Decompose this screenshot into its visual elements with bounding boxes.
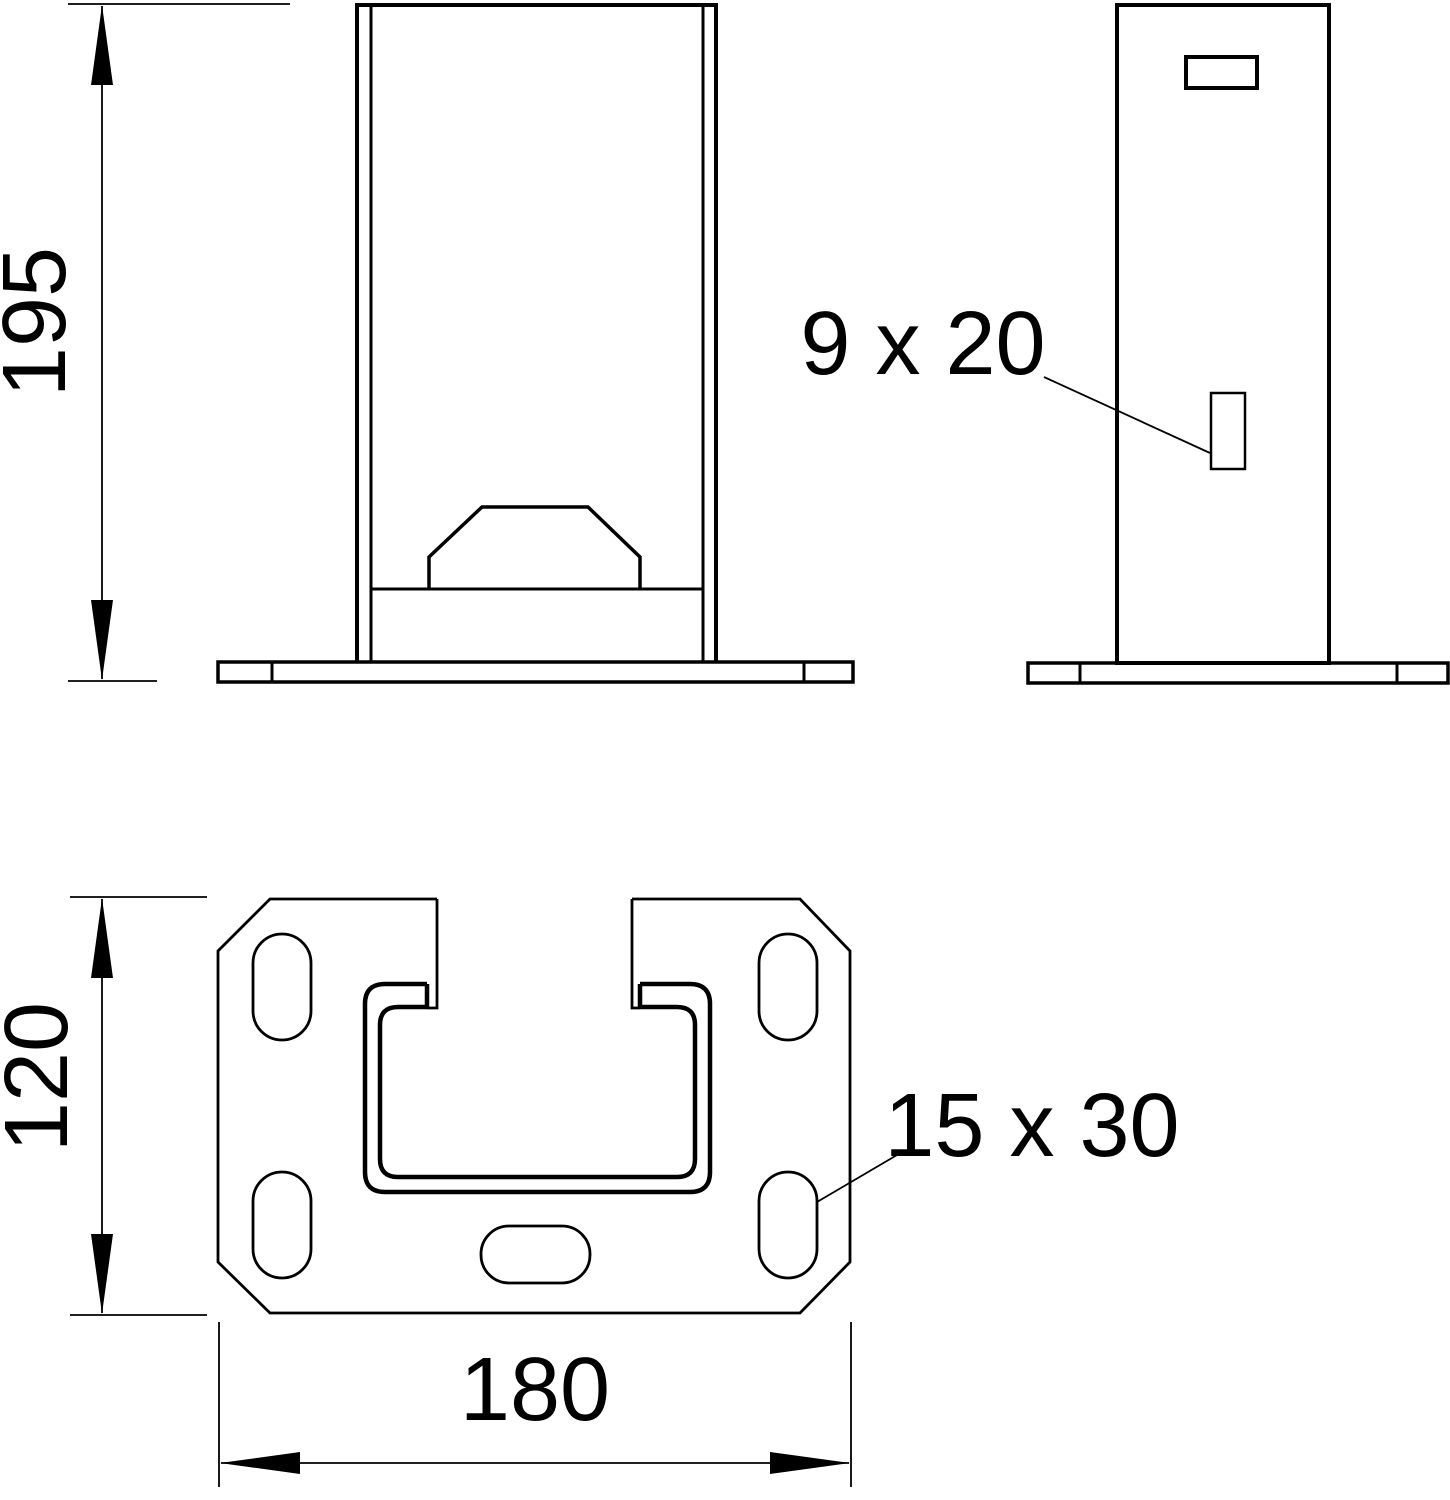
dim-120-value: 120: [0, 1002, 87, 1152]
slot-15x30-bottom-left: [253, 1172, 311, 1278]
dim-180-value: 180: [460, 1340, 610, 1440]
bottom-view: 15 x 30: [218, 899, 1180, 1313]
dim-120-arrow-down: [91, 1234, 113, 1314]
slot-15x30-top-left: [253, 934, 311, 1040]
front-base-plate: [218, 662, 853, 682]
side-base-plate: [1028, 663, 1448, 683]
dim-180-arrow-right: [770, 1452, 850, 1474]
dim-195-arrow-down: [91, 600, 113, 680]
dim-195-arrow-up: [91, 5, 113, 85]
channel-lip-tips: [427, 984, 640, 1007]
dim-195-value: 195: [0, 247, 85, 397]
side-top-slot: [1186, 57, 1257, 88]
dim-120-arrow-up: [91, 898, 113, 978]
side-oblong-slot-9x20: [1211, 393, 1245, 469]
slot-center-bottom: [481, 1226, 590, 1283]
front-hat-profile: [429, 507, 640, 589]
plate-octagon-outline: [218, 899, 850, 1313]
side-post-outline: [1117, 5, 1329, 663]
technical-drawing-page: 9 x 20 15 x 30 195: [0, 0, 1450, 1500]
slot-15x30-top-right: [759, 934, 817, 1040]
side-base-plate-corner-edges: [1080, 663, 1397, 683]
front-base-plate-corner-edges: [272, 662, 804, 682]
front-view: [218, 5, 853, 682]
dimension-height-195: 195: [0, 4, 290, 681]
channel-profile-inner: [380, 1007, 695, 1177]
slot-size-label-15x30: 15 x 30: [884, 1076, 1179, 1176]
dim-180-arrow-left: [220, 1452, 300, 1474]
side-view: 9 x 20: [800, 5, 1448, 683]
slot-size-label-9x20: 9 x 20: [800, 294, 1045, 394]
dimension-drawing: 9 x 20 15 x 30 195: [0, 0, 1450, 1500]
channel-profile-outer: [365, 984, 710, 1192]
dimension-depth-120: 120: [0, 897, 207, 1315]
dimension-width-180: 180: [219, 1322, 851, 1487]
slot-9x20-leader-line: [1044, 377, 1210, 453]
slot-15x30-bottom-right: [759, 1172, 817, 1278]
